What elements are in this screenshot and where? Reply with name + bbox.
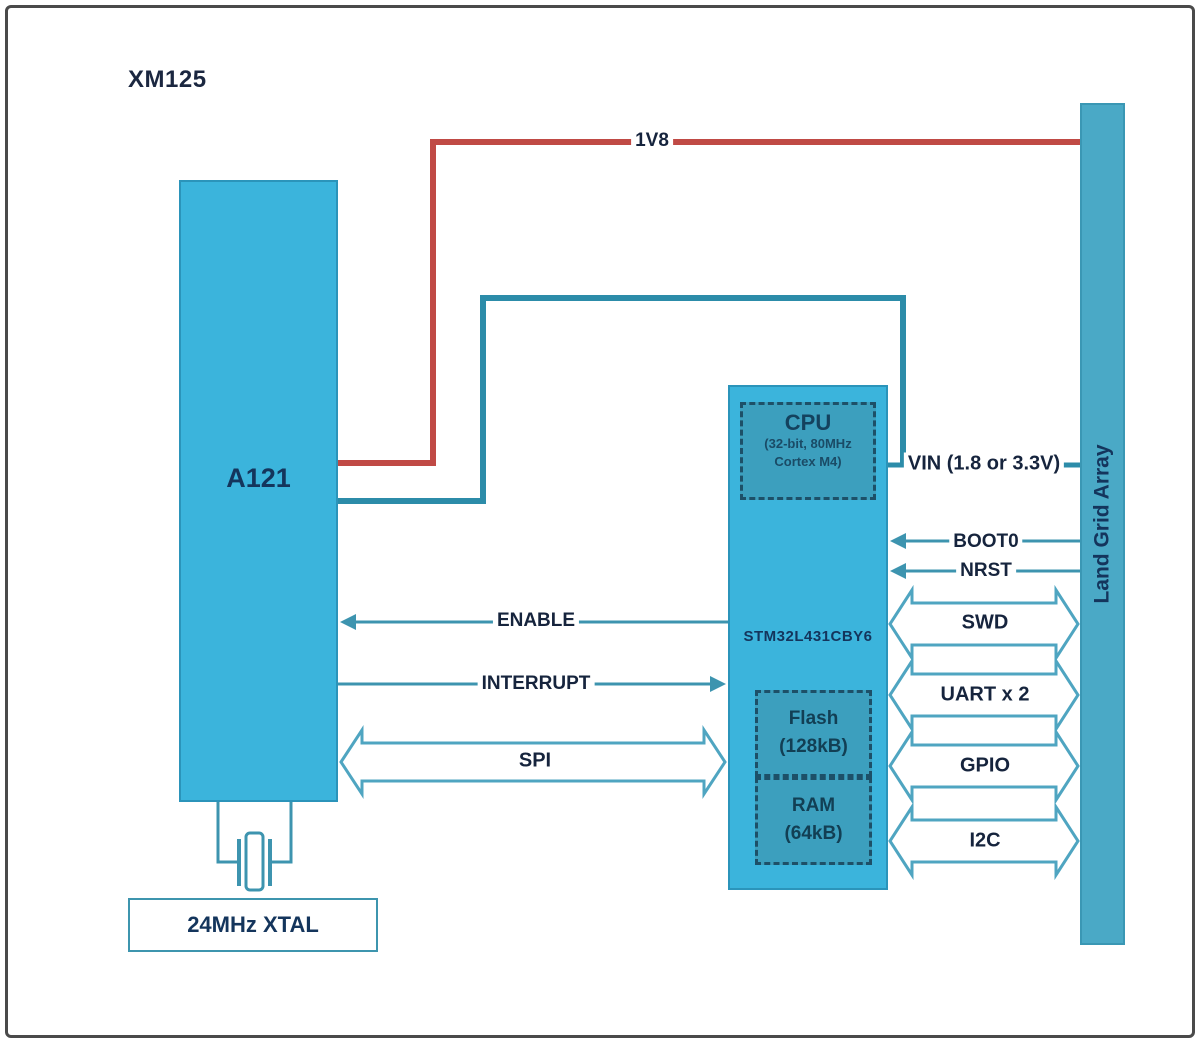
cpu-title: CPU (743, 411, 873, 435)
lga-label: Land Grid Array (1091, 444, 1115, 603)
label-i2c: I2C (969, 830, 1000, 853)
block-a121: A121 (179, 180, 338, 802)
label-vin: VIN (1.8 or 3.3V) (904, 453, 1064, 476)
block-flash: Flash (128kB) (755, 690, 872, 777)
label-spi: SPI (519, 750, 551, 773)
cpu-subtitle-line2: Cortex M4) (743, 453, 873, 471)
label-uart: UART x 2 (941, 684, 1030, 707)
a121-label: A121 (181, 463, 336, 494)
flash-label-line1: Flash (758, 705, 869, 733)
label-swd: SWD (962, 612, 1009, 635)
label-enable: ENABLE (493, 610, 579, 632)
label-gpio: GPIO (960, 755, 1010, 778)
ram-label-line2: (64kB) (758, 820, 869, 848)
xtal-label: 24MHz XTAL (187, 912, 319, 938)
label-nrst: NRST (956, 560, 1016, 582)
xm125-block-diagram: XM125 (0, 0, 1200, 1043)
ram-label-line1: RAM (758, 792, 869, 820)
diagram-title: XM125 (128, 66, 207, 94)
stm32-label: STM32L431CBY6 (730, 628, 886, 645)
label-1v8: 1V8 (631, 130, 673, 152)
block-cpu: CPU (32-bit, 80MHz Cortex M4) (740, 402, 876, 500)
label-interrupt: INTERRUPT (478, 673, 595, 695)
label-boot0: BOOT0 (949, 531, 1022, 553)
block-stm32: CPU (32-bit, 80MHz Cortex M4) STM32L431C… (728, 385, 888, 890)
block-ram: RAM (64kB) (755, 777, 872, 865)
block-xtal: 24MHz XTAL (128, 898, 378, 952)
cpu-subtitle-line1: (32-bit, 80MHz (743, 435, 873, 453)
flash-label-line2: (128kB) (758, 733, 869, 761)
block-land-grid-array: Land Grid Array (1080, 103, 1125, 945)
